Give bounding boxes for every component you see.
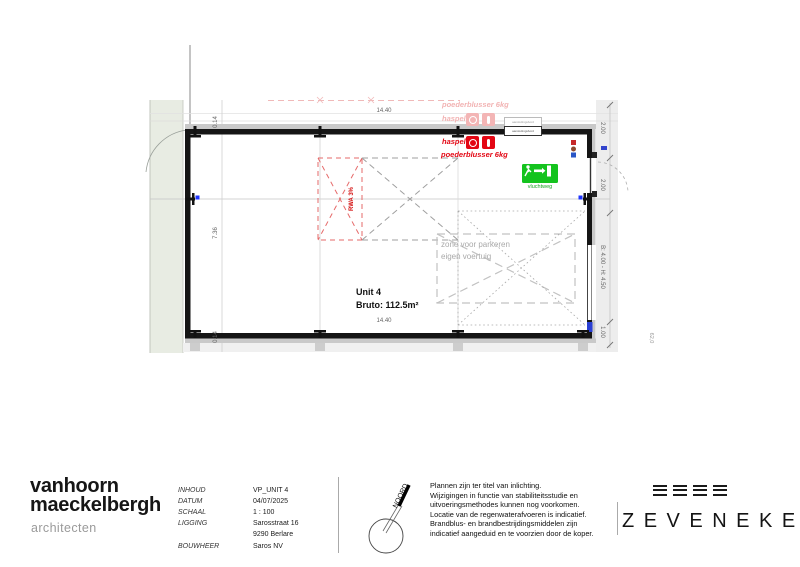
parking-zone-label-line1: zone voor parkeren	[441, 240, 510, 250]
disclaimer-line: Brandblus- en brandbestrijdingsmiddelen …	[430, 519, 594, 529]
roadside-strip	[596, 100, 618, 352]
disclaimer-line: uitvoeringsmethodes kunnen nog voorkomen…	[430, 500, 594, 510]
info-label-ligging: LIGGING	[178, 520, 207, 527]
exit-arrow-icon	[534, 168, 545, 174]
emergency-exit-sign	[522, 164, 558, 183]
dim-wall-bottom: 0.14	[213, 331, 219, 343]
gate-clearance-zone	[458, 211, 585, 325]
info-value-ligging-2: 9290 Berlare	[253, 531, 293, 538]
disclaimer-text: Plannen zijn ter titel van inlichting. W…	[430, 481, 594, 538]
exit-sign-label: vluchtweg	[522, 184, 558, 190]
terrain-strip	[146, 100, 187, 353]
site-level-label: 62,0	[648, 333, 654, 344]
hose-reel-label-faded: haspel	[442, 114, 466, 123]
info-label-inhoud: INHOUD	[178, 487, 206, 494]
dim-top-width: 14.40	[376, 108, 391, 114]
disclaimer-line: Locatie van de regenwaterafvoeren is ind…	[430, 510, 594, 520]
fire-hose-reel-icon	[466, 136, 479, 149]
grid-lines	[150, 100, 613, 352]
fire-extinguisher-icon	[482, 136, 495, 149]
info-label-bouwheer: BOUWHEER	[178, 543, 219, 550]
dim-right-door: 2.00	[599, 179, 605, 191]
extinguisher-glyph	[487, 139, 491, 147]
hose-reel-label: haspel	[442, 137, 466, 146]
info-value-datum: 04/07/2025	[253, 498, 288, 505]
architect-name: vanhoorn maeckelbergh	[30, 477, 161, 514]
dim-bottom-width: 14.40	[376, 318, 391, 324]
rwa-label: RWA 3%	[349, 187, 355, 211]
exit-door-icon	[547, 166, 551, 177]
dim-interior-height: 7.36	[213, 227, 219, 239]
info-value-schaal: 1 : 100	[253, 509, 274, 516]
dim-right-top: 2.00	[599, 122, 605, 134]
dim-wall-top: 0.14	[213, 116, 219, 128]
disclaimer-line: Wijzigingen in functie van stabiliteitss…	[430, 491, 594, 501]
running-man-icon	[525, 165, 531, 176]
info-value-ligging-1: Sarosstraat 16	[253, 520, 299, 527]
extinguisher-glyph	[487, 116, 491, 124]
disclaimer-line: indicatief aangeduid en te voorzien door…	[430, 529, 594, 539]
footer-divider-right	[617, 502, 618, 535]
hose-reel-glyph	[469, 139, 477, 147]
hose-reel-glyph	[469, 116, 477, 124]
footer-divider-left	[338, 477, 339, 553]
fire-hose-reel-icon-faded	[466, 113, 479, 126]
disclaimer-line: Plannen zijn ter titel van inlichting.	[430, 481, 594, 491]
exit-pictogram	[522, 164, 552, 178]
zeveneke-wordmark: ZEVENEKE	[622, 510, 800, 533]
info-label-datum: DATUM	[178, 498, 202, 505]
parking-zone-label-line2: eigen voertuig	[441, 252, 491, 262]
drawing-sheet: 14.40 14.40 0.14 7.36 0.14 2.00 2.00 B: …	[0, 0, 800, 567]
unit-name: Unit 4	[356, 286, 381, 299]
extinguisher-label-faded: poederblusser 6kg	[442, 100, 509, 109]
fire-extinguisher-icon-faded	[482, 113, 495, 126]
extinguisher-label: poederblusser 6kg	[441, 150, 508, 159]
zeveneke-bars-icon	[653, 485, 727, 496]
unit-area: Bruto: 112.5m²	[356, 299, 419, 312]
connection-box-label-2: aansluitingsbord	[504, 126, 542, 136]
architect-subtitle: architecten	[31, 521, 97, 535]
architect-name-line1: vanhoorn	[30, 477, 161, 496]
dim-right-gate: B: 4.00 - H: 4.50	[599, 245, 605, 289]
info-value-bouwheer: Saros NV	[253, 543, 283, 550]
utility-symbols	[571, 140, 576, 158]
dim-right-bottom: 1.00	[599, 326, 605, 338]
adjacent-unit-below	[183, 343, 596, 352]
info-label-schaal: SCHAAL	[178, 509, 206, 516]
info-value-inhoud: VP_UNIT 4	[253, 487, 288, 494]
architect-name-line2: maeckelbergh	[30, 496, 161, 515]
